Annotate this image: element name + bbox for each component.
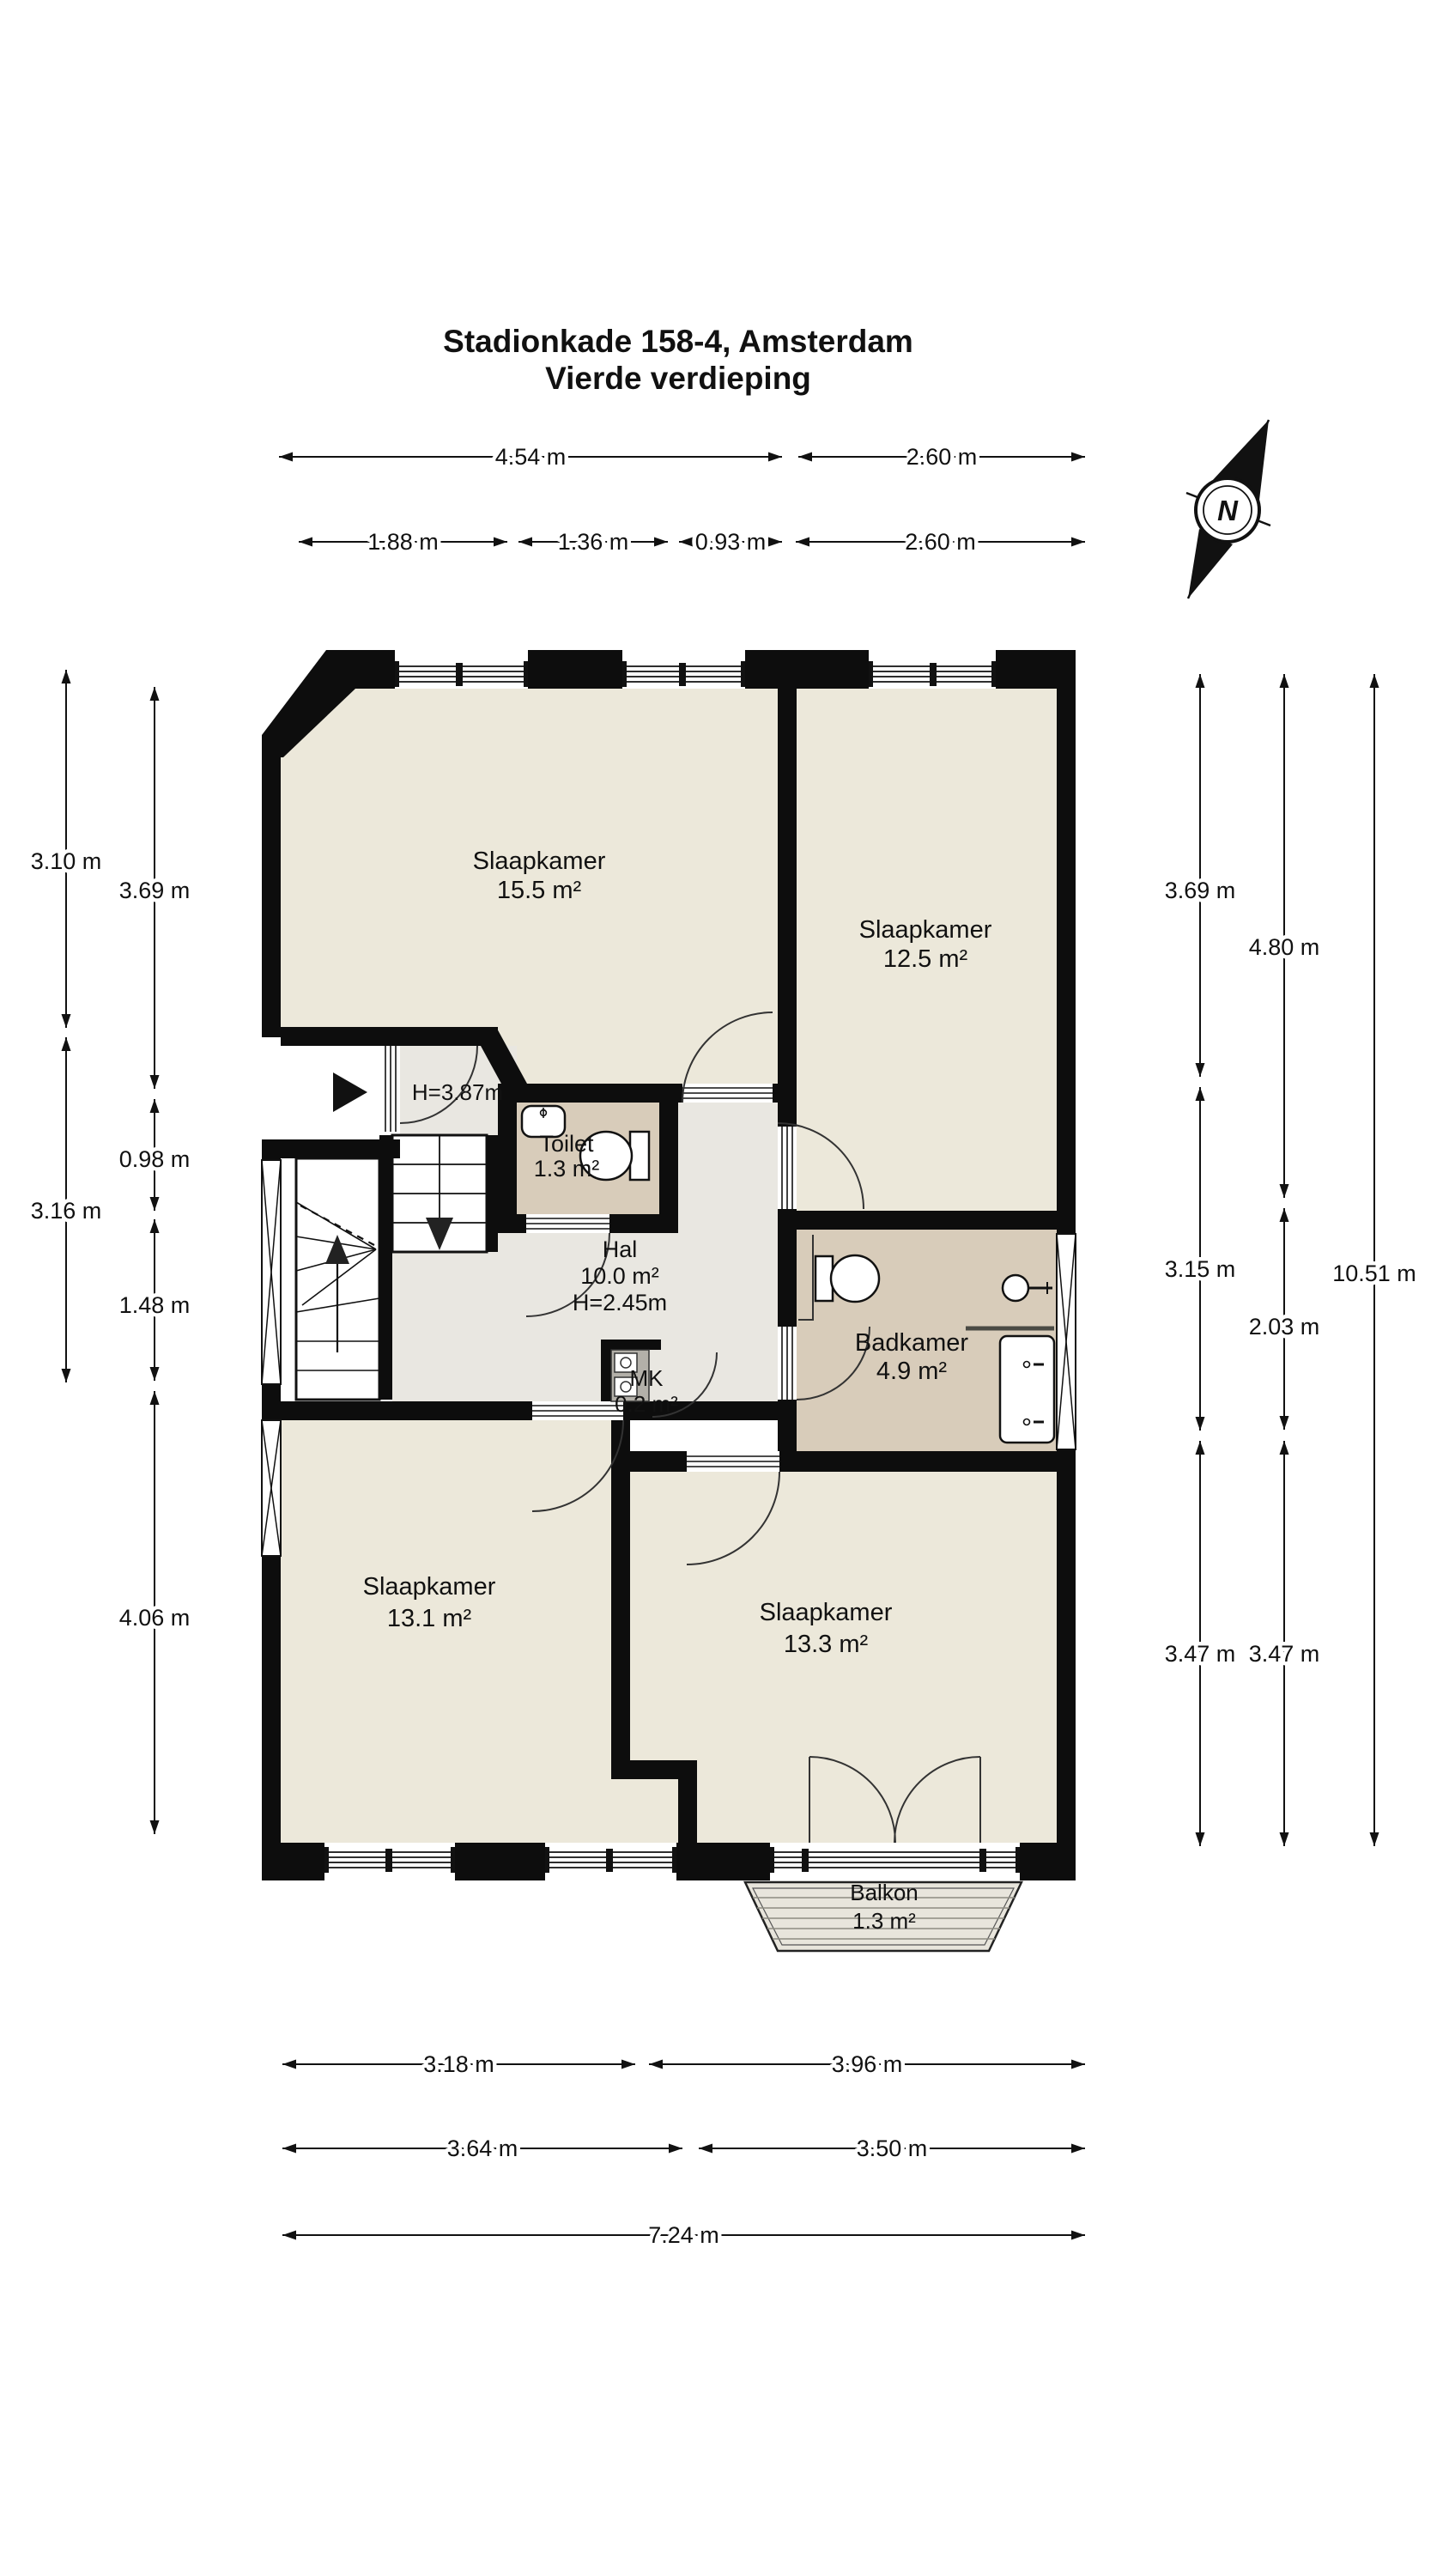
dim-horizontal: 3.96 m [649, 2051, 1085, 2077]
room-label-balkon: Balkon [850, 1880, 919, 1905]
dim-arrowhead [1280, 1184, 1289, 1198]
dim-vertical: 1.48 m [119, 1219, 191, 1381]
window-left-bedroom [262, 1420, 281, 1556]
dim-label: 2.60 m [906, 444, 978, 470]
dim-arrowhead [150, 687, 160, 701]
dim-horizontal: 1.88 m [299, 529, 507, 555]
dim-vertical: 3.47 m [1249, 1441, 1320, 1846]
dim-arrowhead [150, 1197, 160, 1211]
dim-arrowhead [1280, 1208, 1289, 1222]
dim-vertical: 3.16 m [31, 1037, 102, 1382]
room-label-badkamer: 4.9 m² [876, 1358, 948, 1385]
dim-vertical: 3.47 m [1165, 1441, 1236, 1846]
dim-arrowhead [1071, 453, 1085, 462]
dim-vertical: 2.03 m [1249, 1208, 1320, 1430]
window-left-stairwell [262, 1160, 281, 1384]
floorplan-drawing: Stadionkade 158-4, Amsterdam Vierde verd… [0, 0, 1449, 2576]
dim-horizontal: 0.93 m [679, 529, 782, 555]
dim-arrowhead [699, 2144, 712, 2154]
dim-arrowhead [621, 2060, 635, 2069]
plan-title: Stadionkade 158-4, Amsterdam Vierde verd… [443, 324, 913, 396]
dim-vertical: 4.80 m [1249, 674, 1320, 1198]
dim-arrowhead [494, 538, 507, 547]
dim-arrowhead [150, 1391, 160, 1405]
room-label-toilet: 1.3 m² [534, 1156, 600, 1182]
annotation-ceiling-height-landing: H=3.87m [412, 1079, 503, 1105]
room-label-slaapkamer-1: 15.5 m² [497, 877, 582, 904]
dim-arrowhead [518, 538, 532, 547]
page-subtitle: Vierde verdieping [545, 361, 811, 396]
dim-arrowhead [62, 670, 71, 683]
window-top-3 [869, 650, 996, 689]
room-label-slaapkamer-1: Slaapkamer [473, 848, 606, 875]
dim-vertical: 3.69 m [1165, 674, 1236, 1077]
dim-arrowhead [282, 2144, 296, 2154]
dim-label: 2.03 m [1249, 1314, 1320, 1340]
dim-label: 0.93 m [695, 529, 767, 555]
room-label-mk: 0.2 m² [615, 1391, 678, 1417]
room-label-slaapkamer-4: 13.3 m² [784, 1631, 869, 1658]
dim-arrowhead [1280, 1416, 1289, 1430]
dim-arrowhead [150, 1820, 160, 1834]
room-label-slaapkamer-2: 12.5 m² [883, 945, 968, 973]
window-top-2 [622, 650, 745, 689]
dim-arrowhead [1370, 674, 1379, 688]
dim-vertical: 3.15 m [1165, 1087, 1236, 1431]
dim-arrowhead [654, 538, 668, 547]
dim-arrowhead [150, 1367, 160, 1381]
dim-label: 3.15 m [1165, 1256, 1236, 1282]
dim-label: 3.69 m [119, 878, 191, 903]
dim-arrowhead [150, 1099, 160, 1113]
dim-vertical: 0.98 m [119, 1099, 191, 1211]
page-title: Stadionkade 158-4, Amsterdam [443, 324, 913, 359]
dim-arrowhead [1071, 538, 1085, 547]
dim-arrowhead [768, 538, 782, 547]
dim-label: 3.96 m [832, 2051, 903, 2077]
dim-arrowhead [768, 453, 782, 462]
window-top-1 [395, 650, 528, 689]
dim-arrowhead [649, 2060, 663, 2069]
dim-label: 3.47 m [1165, 1641, 1236, 1667]
dim-horizontal: 1.36 m [518, 529, 668, 555]
dim-label: 4.54 m [495, 444, 567, 470]
window-bottom-2 [545, 1843, 676, 1874]
dim-label: 7.24 m [648, 2222, 719, 2248]
chamfer-break-icon [263, 668, 286, 696]
dim-horizontal: 4.54 m [279, 444, 782, 470]
dim-label: 3.10 m [31, 848, 102, 874]
dim-arrowhead [669, 2144, 682, 2154]
room-label-balkon: 1.3 m² [852, 1908, 916, 1934]
room-label-slaapkamer-2: Slaapkamer [859, 916, 992, 944]
dim-label: 1.48 m [119, 1292, 191, 1318]
dim-arrowhead [1071, 2144, 1085, 2154]
dim-arrowhead [1280, 1832, 1289, 1846]
entrance-arrow-icon [333, 1072, 367, 1112]
dim-label: 3.47 m [1249, 1641, 1320, 1667]
floor-areas [281, 689, 1057, 1843]
room-label-badkamer: Badkamer [855, 1329, 969, 1357]
dim-arrowhead [1280, 674, 1289, 688]
annotation-labels: H=3.87m [412, 1079, 503, 1105]
dim-arrowhead [1071, 2231, 1085, 2240]
dim-label: 4.06 m [119, 1605, 191, 1631]
dim-horizontal: 2.60 m [796, 529, 1085, 555]
dim-arrowhead [1370, 1832, 1379, 1846]
dim-label: 3.64 m [447, 2136, 518, 2161]
dim-label: 3.16 m [31, 1198, 102, 1224]
room-label-slaapkamer-4: Slaapkamer [760, 1599, 893, 1626]
dim-arrowhead [62, 1369, 71, 1382]
dim-arrowhead [1071, 2060, 1085, 2069]
room-label-toilet: Toilet [539, 1131, 594, 1157]
floorplan-page: Stadionkade 158-4, Amsterdam Vierde verd… [0, 0, 1449, 2576]
dim-label: 3.69 m [1165, 878, 1236, 903]
room-label-hal: Hal [603, 1236, 638, 1262]
room-label-slaapkamer-3: 13.1 m² [387, 1605, 472, 1632]
dim-arrowhead [299, 538, 312, 547]
room-label-hal: H=2.45m [573, 1290, 667, 1315]
dim-vertical: 3.69 m [119, 687, 191, 1089]
compass-label: N [1217, 495, 1239, 526]
floor-hall-upper [678, 1103, 778, 1233]
room-label-mk: MK [630, 1365, 664, 1391]
dim-arrowhead [282, 2231, 296, 2240]
dim-arrowhead [1196, 1832, 1205, 1846]
window-bottom-1 [324, 1843, 455, 1874]
dim-horizontal: 7.24 m [282, 2222, 1085, 2248]
compass: N [1186, 420, 1270, 598]
room-label-hal: 10.0 m² [580, 1263, 659, 1289]
dim-arrowhead [1196, 1063, 1205, 1077]
dim-label: 1.36 m [558, 529, 629, 555]
dim-arrowhead [62, 1014, 71, 1028]
dim-horizontal: 3.18 m [282, 2051, 635, 2077]
dim-arrowhead [150, 1219, 160, 1233]
dim-arrowhead [1196, 1441, 1205, 1455]
dim-label: 1.88 m [367, 529, 439, 555]
dim-arrowhead [798, 453, 812, 462]
dim-arrowhead [1196, 1087, 1205, 1101]
dim-arrowhead [282, 2060, 296, 2069]
dim-vertical: 10.51 m [1332, 674, 1416, 1846]
dim-arrowhead [796, 538, 809, 547]
dim-arrowhead [1196, 1417, 1205, 1431]
dim-label: 0.98 m [119, 1146, 191, 1172]
floor-hall-understairs [392, 1252, 498, 1401]
dim-horizontal: 3.64 m [282, 2136, 682, 2161]
dim-vertical: 3.10 m [31, 670, 102, 1028]
dim-label: 10.51 m [1332, 1261, 1416, 1286]
dim-vertical: 4.06 m [119, 1391, 191, 1834]
dim-horizontal: 2.60 m [798, 444, 1085, 470]
dim-label: 4.80 m [1249, 934, 1320, 960]
toilet-icon [815, 1255, 879, 1302]
dim-arrowhead [1196, 674, 1205, 688]
dim-arrowhead [1280, 1441, 1289, 1455]
window-right-badkamer [1057, 1234, 1076, 1449]
dim-horizontal: 3.50 m [699, 2136, 1085, 2161]
dim-label: 3.18 m [423, 2051, 494, 2077]
room-label-slaapkamer-3: Slaapkamer [363, 1573, 496, 1601]
shower-tray-icon [1000, 1336, 1054, 1443]
dim-label: 3.50 m [857, 2136, 928, 2161]
dim-arrowhead [150, 1075, 160, 1089]
dim-arrowhead [279, 453, 293, 462]
dim-arrowhead [62, 1037, 71, 1051]
dim-label: 2.60 m [905, 529, 976, 555]
dim-arrowhead [679, 538, 693, 547]
